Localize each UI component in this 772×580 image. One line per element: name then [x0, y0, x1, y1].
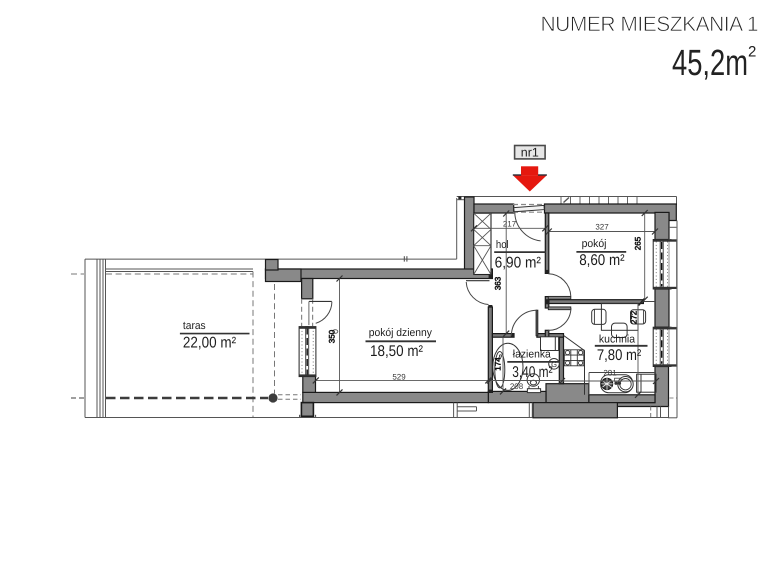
svg-text:taras: taras — [183, 320, 206, 332]
svg-text:nr1: nr1 — [521, 146, 539, 160]
svg-text:3,40 m²: 3,40 m² — [512, 364, 552, 381]
svg-text:350: 350 — [328, 329, 337, 343]
svg-text:265: 265 — [634, 236, 643, 250]
svg-text:kuchnia: kuchnia — [599, 333, 636, 345]
svg-text:pokój: pokój — [582, 238, 607, 250]
svg-text:272: 272 — [629, 310, 638, 324]
svg-text:pokój dzienny: pokój dzienny — [369, 327, 433, 339]
svg-text:18,50 m²: 18,50 m² — [370, 343, 423, 360]
svg-text:22,00 m²: 22,00 m² — [183, 335, 236, 352]
svg-text:7,80 m²: 7,80 m² — [597, 347, 641, 364]
svg-text:6,90 m²: 6,90 m² — [495, 255, 541, 272]
svg-text:174: 174 — [494, 357, 503, 371]
svg-text:208: 208 — [510, 382, 524, 391]
svg-text:NUMER MIESZKANIA 1: NUMER MIESZKANIA 1 — [541, 13, 759, 36]
svg-text:327: 327 — [595, 223, 609, 232]
svg-text:łazienka: łazienka — [513, 349, 552, 361]
svg-text:281: 281 — [603, 369, 617, 378]
svg-text:217: 217 — [503, 219, 517, 228]
svg-text:8,60 m²: 8,60 m² — [579, 252, 624, 269]
svg-text:2: 2 — [748, 44, 756, 61]
svg-text:363: 363 — [494, 276, 503, 290]
svg-text:45,2m: 45,2m — [672, 42, 748, 83]
svg-text:529: 529 — [392, 373, 406, 382]
svg-text:hol: hol — [496, 239, 509, 251]
